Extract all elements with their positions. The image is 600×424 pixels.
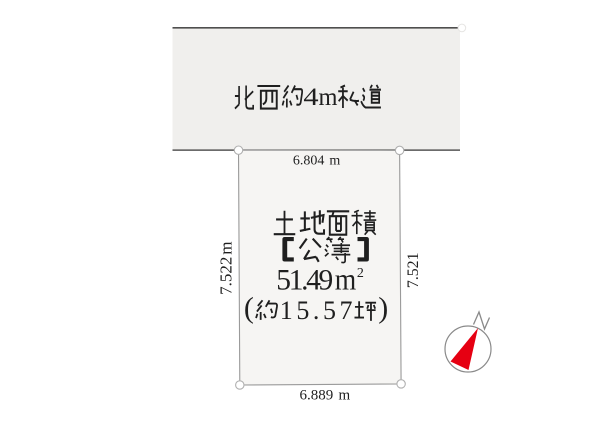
svg-text:m: m — [335, 262, 357, 297]
svg-text:4: 4 — [303, 84, 319, 111]
svg-text:m: m — [319, 84, 339, 111]
svg-text:7.522m: 7.522m — [217, 241, 236, 294]
svg-text:7.521: 7.521 — [405, 253, 422, 289]
svg-text:15.57: 15.57 — [280, 296, 356, 325]
svg-text:6.804m: 6.804m — [293, 154, 341, 169]
svg-text:51.49: 51.49 — [276, 265, 332, 297]
svg-text:2: 2 — [357, 266, 364, 281]
svg-text:(: ( — [244, 292, 254, 325]
svg-text:): ) — [378, 292, 388, 325]
svg-text:6.889m: 6.889m — [300, 388, 351, 404]
